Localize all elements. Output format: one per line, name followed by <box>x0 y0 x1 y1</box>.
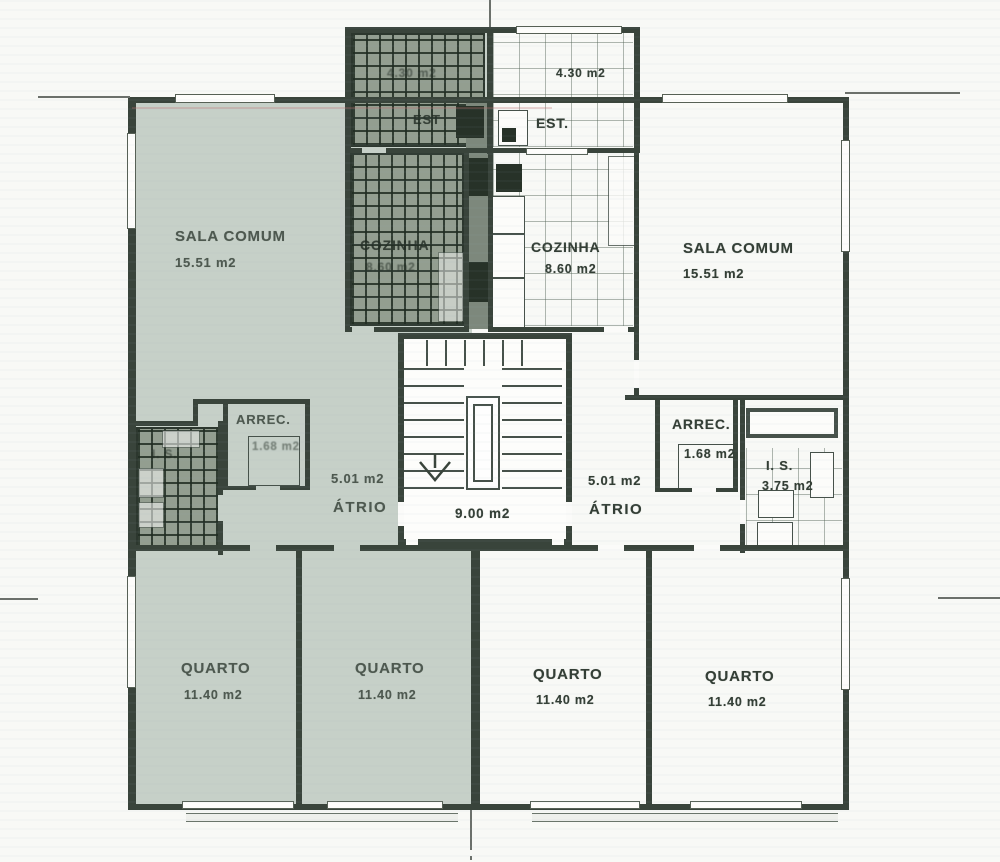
door-opening <box>218 495 223 521</box>
kitchen-counter-right <box>492 234 525 278</box>
reference-mark <box>489 0 491 27</box>
stairwell-area-label: 9.00 m2 <box>455 506 510 521</box>
room-name-quarto-left-a: QUARTO <box>181 660 251 677</box>
water-heater-left <box>456 106 484 138</box>
door-opening <box>694 545 720 551</box>
wall-segment <box>488 148 493 332</box>
window-marker <box>530 801 640 809</box>
reference-mark <box>38 96 130 98</box>
room-area-quarto-left-b: 11.40 m2 <box>358 688 417 702</box>
room-area-sala-right: 15.51 m2 <box>683 266 744 281</box>
wall-segment <box>130 545 849 551</box>
window-marker <box>327 801 443 809</box>
washbasin-right <box>810 452 834 498</box>
door-opening <box>566 502 572 526</box>
bathtub-right <box>746 408 838 438</box>
door-opening <box>250 545 276 551</box>
door-opening <box>398 502 404 526</box>
room-name-cozinha-right: COZINHA <box>531 239 600 255</box>
duct-shaft <box>468 262 488 302</box>
room-area-atrio-left: 5.01 m2 <box>331 471 384 486</box>
room-area-cozinha-left: 8.60 m2 <box>366 260 416 274</box>
room-name-quarto-right-a: QUARTO <box>533 666 603 683</box>
reference-mark <box>470 810 472 850</box>
window-sill <box>186 813 458 822</box>
room-name-atrio-right: ÁTRIO <box>589 501 643 518</box>
window-marker <box>841 140 850 252</box>
toilet-left <box>138 468 164 498</box>
stair-treads-upper <box>426 340 540 366</box>
water-heater-right-core <box>502 128 516 142</box>
room-area-est-left: 4.30 m2 <box>387 66 437 80</box>
wall-segment <box>733 395 738 492</box>
stair-direction-arrow-icon <box>412 450 458 484</box>
stair-treads-right-flight <box>502 368 562 490</box>
room-name-arrec-left: ARREC. <box>236 412 291 427</box>
room-area-arrec-right: 1.68 m2 <box>684 447 735 461</box>
room-area-cozinha-right: 8.60 m2 <box>545 262 596 276</box>
kitchen-counter-left <box>438 252 464 322</box>
washbasin-left <box>162 430 200 448</box>
wall-segment <box>223 399 228 490</box>
room-area-est-right: 4.30 m2 <box>556 66 606 80</box>
room-name-quarto-left-b: QUARTO <box>355 660 425 677</box>
room-area-quarto-right-b: 11.40 m2 <box>708 695 767 709</box>
wall-segment <box>345 27 351 153</box>
wall-segment <box>655 395 660 492</box>
room-name-sala-left: SALA COMUM <box>175 228 286 245</box>
door-opening <box>740 500 745 524</box>
wall-segment <box>471 551 480 804</box>
door-opening <box>634 360 639 388</box>
door-opening <box>362 148 386 153</box>
reference-mark <box>845 92 960 94</box>
wall-segment <box>740 395 745 553</box>
window-marker <box>662 94 788 103</box>
door-opening <box>604 327 628 332</box>
wall-segment <box>305 399 310 490</box>
floor-plan: SALA COMUM 15.51 m2 COZINHA 8.60 m2 4.30… <box>0 0 1000 862</box>
room-area-is-right: 3.75 m2 <box>762 479 813 493</box>
door-opening <box>256 486 280 490</box>
room-area-arrec-left: 1.68 m2 <box>252 441 300 453</box>
room-area-quarto-left-a: 11.40 m2 <box>184 688 243 702</box>
window-marker <box>175 94 275 103</box>
window-marker <box>841 578 850 690</box>
reference-mark <box>938 597 1000 599</box>
door-opening <box>552 539 564 545</box>
window-marker <box>127 133 136 229</box>
stair-newel-inner <box>473 404 493 482</box>
wall-segment <box>646 551 652 804</box>
door-opening <box>352 327 374 332</box>
room-area-quarto-right-a: 11.40 m2 <box>536 693 595 707</box>
window-marker <box>526 148 588 155</box>
door-opening <box>406 539 418 545</box>
wall-segment <box>296 551 302 804</box>
duct-shaft <box>468 158 488 196</box>
wall-segment <box>398 333 572 339</box>
reference-mark <box>470 856 472 860</box>
window-marker <box>127 576 136 688</box>
toilet-right <box>758 490 794 518</box>
room-name-arrec-right: ARREC. <box>672 416 730 432</box>
wall-segment <box>634 27 640 153</box>
kitchen-counter-right-2 <box>608 156 636 246</box>
room-name-is-right: I. S. <box>766 458 793 473</box>
door-opening <box>598 545 624 551</box>
door-opening <box>345 360 350 388</box>
room-name-est-left: EST <box>413 112 441 127</box>
door-opening <box>334 545 360 551</box>
room-name-cozinha-left: COZINHA <box>360 237 429 253</box>
room-name-quarto-right-b: QUARTO <box>705 668 775 685</box>
window-marker <box>690 801 802 809</box>
wall-segment <box>464 148 469 332</box>
room-name-est-right: EST. <box>536 115 569 131</box>
window-marker <box>182 801 294 809</box>
window-marker <box>516 26 622 34</box>
door-opening <box>692 488 716 492</box>
room-name-sala-right: SALA COMUM <box>683 240 794 257</box>
wall-segment <box>195 399 310 404</box>
window-sill <box>532 813 838 822</box>
room-area-sala-left: 15.51 m2 <box>175 255 236 270</box>
wall-segment <box>487 27 493 154</box>
wall-segment <box>133 421 197 426</box>
wall-segment <box>345 148 350 332</box>
kitchen-stove-right <box>492 278 525 328</box>
room-area-atrio-right: 5.01 m2 <box>588 473 641 488</box>
kitchen-duct-right <box>496 164 522 192</box>
kitchen-sink-right <box>492 196 525 234</box>
reference-mark <box>0 598 38 600</box>
room-name-is-left: I. S. <box>152 447 177 461</box>
bidet-left <box>138 502 164 528</box>
room-name-atrio-left: ÁTRIO <box>333 499 387 516</box>
